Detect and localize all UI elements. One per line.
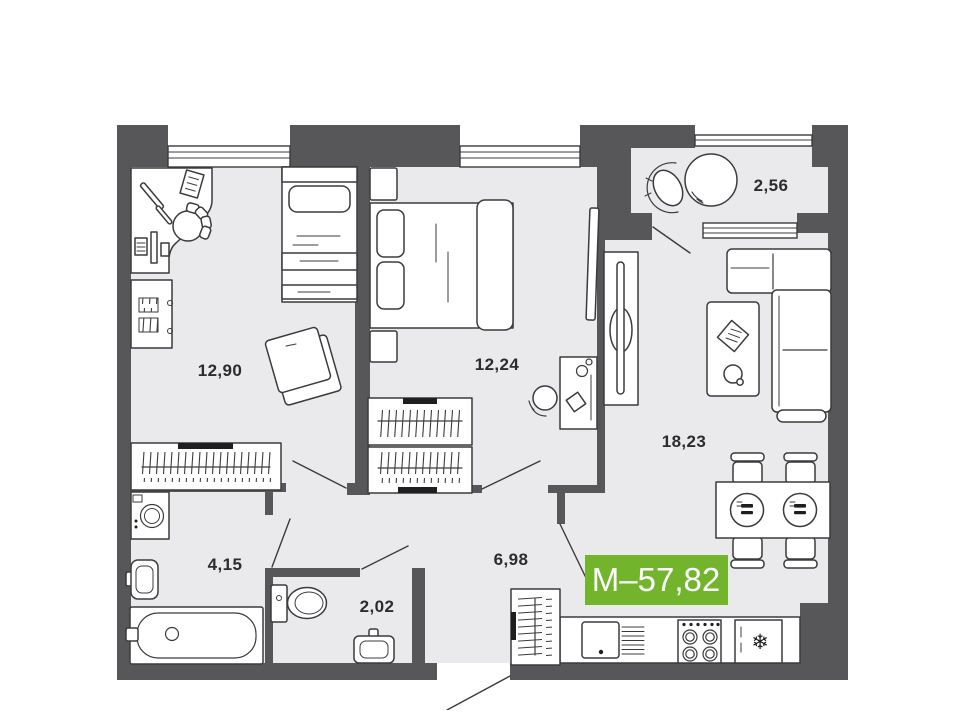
wall-segment xyxy=(800,603,848,680)
wardrobe-bedroom-1 xyxy=(131,443,281,490)
bed-single xyxy=(282,167,357,302)
wall-segment xyxy=(598,213,652,240)
wall-segment xyxy=(812,125,848,167)
floor-plan-page: ❄ xyxy=(0,0,960,710)
total-area-badge: М–57,82 xyxy=(585,555,728,605)
room-area-label: 12,90 xyxy=(198,361,243,380)
badge-label: М–57,82 xyxy=(592,561,720,598)
place-setting-icon xyxy=(731,494,764,527)
wall-segment xyxy=(117,125,168,167)
wall-segment xyxy=(597,146,631,215)
wall-segment xyxy=(630,125,695,148)
chair xyxy=(731,453,764,461)
bed-double xyxy=(370,200,513,330)
room-area-label: 2,02 xyxy=(360,597,395,616)
tall-cabinet xyxy=(604,252,638,405)
hallway-furniture xyxy=(511,589,560,665)
bathroom-sink xyxy=(126,560,158,599)
floor-plan: ❄ xyxy=(0,0,960,710)
chair xyxy=(784,453,817,461)
door-entrance xyxy=(447,676,510,710)
round-chair xyxy=(685,154,737,206)
coffee-table xyxy=(707,302,759,396)
room-area-label: 12,24 xyxy=(475,355,520,374)
desk-bedroom-2 xyxy=(560,357,597,429)
room-area-label: 2,56 xyxy=(754,176,789,195)
wall-segment xyxy=(117,663,437,680)
wall-segment xyxy=(412,568,425,663)
bathtub xyxy=(126,607,263,664)
washing-machine xyxy=(131,492,169,539)
wall-segment xyxy=(117,125,131,680)
wall-segment xyxy=(548,485,605,493)
chair xyxy=(786,537,815,559)
wall-segment xyxy=(290,125,460,167)
room-area-label: 6,98 xyxy=(494,550,529,569)
wardrobe-hall-side xyxy=(368,447,472,493)
window-living-balcony xyxy=(703,223,797,238)
place-setting-icon xyxy=(784,494,817,527)
wall-segment xyxy=(557,492,565,524)
window-bedroom-2 xyxy=(460,146,580,167)
wardrobe-door-mark xyxy=(403,398,437,404)
room-area-label: 4,15 xyxy=(208,555,243,574)
chair xyxy=(733,537,762,559)
snowflake-icon: ❄ xyxy=(751,630,769,654)
nightstand xyxy=(370,331,397,362)
window-bedroom-1 xyxy=(168,146,290,167)
toilet xyxy=(271,585,327,622)
wardrobe-door-mark xyxy=(511,612,516,640)
wall-segment xyxy=(797,213,830,233)
kitchen-counter: ❄ xyxy=(560,617,800,663)
wardrobe-bedroom-2 xyxy=(368,398,472,445)
wardrobe-door-mark xyxy=(178,443,233,449)
nightstand xyxy=(370,168,397,200)
fridge: ❄ xyxy=(735,620,782,663)
wardrobe-door-mark xyxy=(398,487,437,493)
wall-segment xyxy=(265,492,273,515)
room-area-label: 18,23 xyxy=(662,432,707,451)
wall-segment xyxy=(347,483,370,495)
balcony-glazing xyxy=(695,135,812,146)
wall-segment xyxy=(273,568,360,577)
hallway-wardrobe xyxy=(511,589,560,665)
stove xyxy=(678,620,721,663)
bookshelf xyxy=(131,280,173,348)
